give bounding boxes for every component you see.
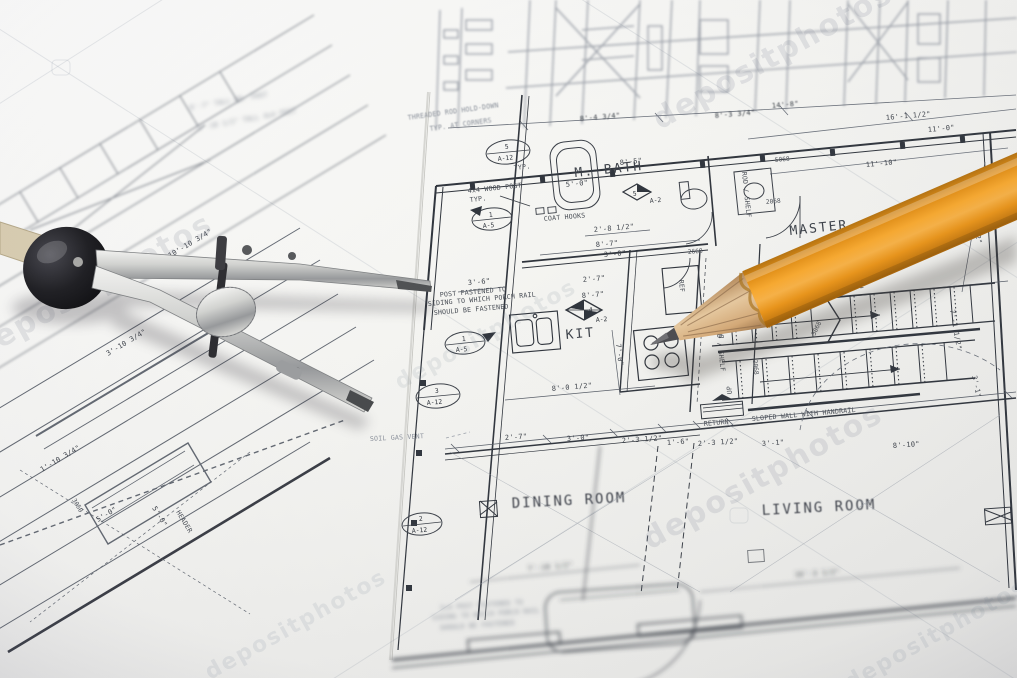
photo-canvas: 10'-10 3/4" 3'-10 3/4" 1'-10 3/4" 5'-0" … [0, 0, 1017, 678]
lighting-vignette [0, 0, 1017, 678]
